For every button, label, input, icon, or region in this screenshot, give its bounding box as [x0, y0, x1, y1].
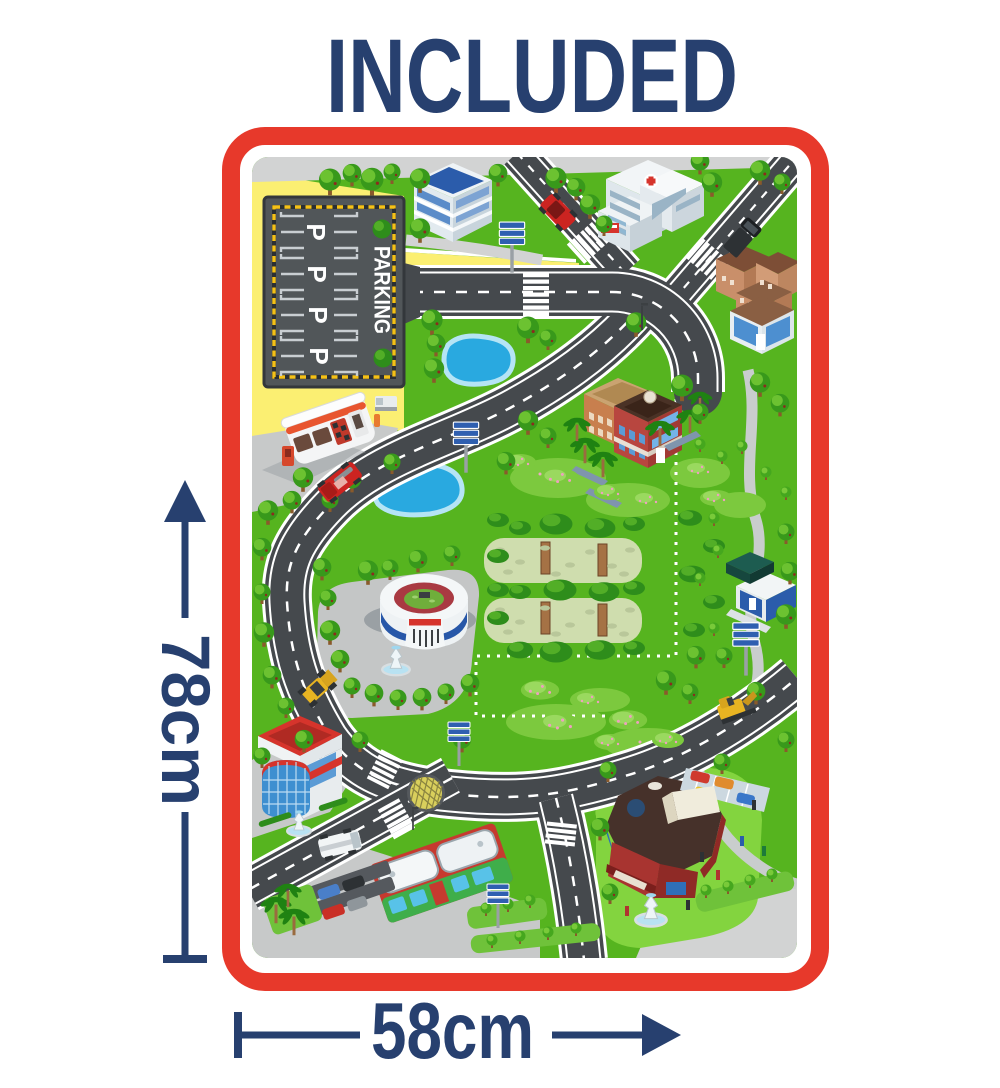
svg-text:P: P: [304, 347, 334, 364]
svg-text:P: P: [301, 223, 331, 240]
svg-text:P: P: [303, 306, 333, 323]
svg-text:INCLUDED: INCLUDED: [326, 18, 738, 135]
svg-text:58cm: 58cm: [371, 986, 534, 1075]
svg-text:PARKING: PARKING: [370, 246, 395, 334]
svg-text:78cm: 78cm: [147, 634, 224, 806]
svg-text:P: P: [302, 265, 332, 282]
